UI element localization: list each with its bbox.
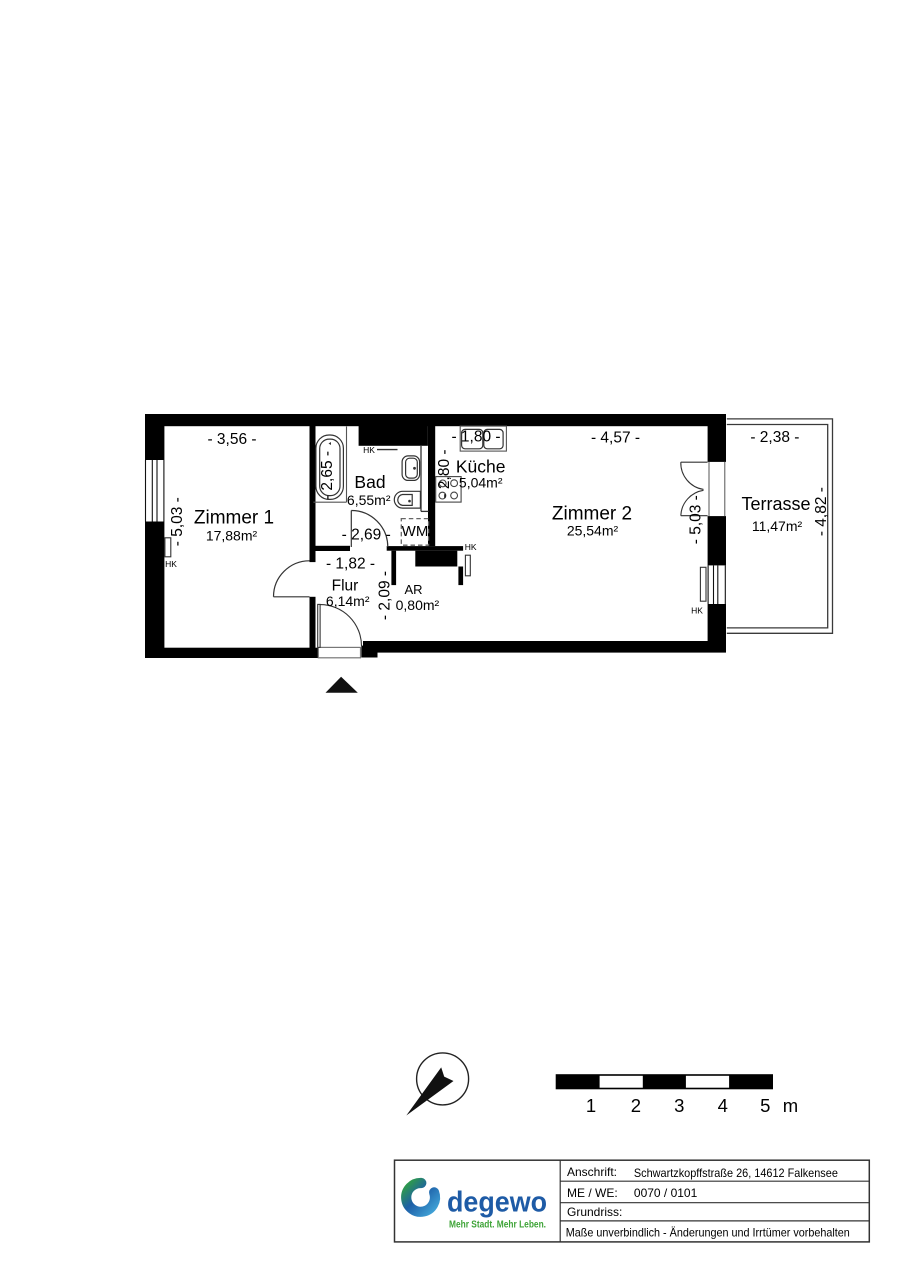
svg-text:- 3,56 -: - 3,56 - [207, 431, 256, 448]
svg-text:- 4,82 -: - 4,82 - [813, 487, 830, 536]
svg-text:- 5,03 -: - 5,03 - [688, 495, 705, 544]
svg-text:- 1,80 -: - 1,80 - [451, 429, 500, 446]
svg-text:Mehr Stadt. Mehr Leben.: Mehr Stadt. Mehr Leben. [449, 1218, 546, 1230]
svg-text:Maße unverbindlich - Änderunge: Maße unverbindlich - Änderungen und Irrt… [566, 1226, 850, 1240]
svg-text:- 2,09 -: - 2,09 - [376, 571, 393, 620]
svg-text:- 2,80 -: - 2,80 - [436, 449, 453, 498]
svg-text:- 5,03 -: - 5,03 - [169, 497, 186, 546]
svg-text:Küche: Küche [456, 456, 506, 476]
svg-text:Zimmer 2: Zimmer 2 [552, 504, 632, 525]
svg-text:5,04m²: 5,04m² [459, 475, 503, 491]
svg-text:3: 3 [674, 1095, 684, 1116]
svg-text:6,14m²: 6,14m² [326, 593, 370, 609]
svg-text:Zimmer 1: Zimmer 1 [194, 508, 274, 529]
svg-text:- 2,38 -: - 2,38 - [750, 429, 799, 446]
svg-text:6,55m²: 6,55m² [347, 492, 391, 508]
svg-text:HK: HK [165, 559, 177, 569]
svg-text:- 4,57 -: - 4,57 - [591, 430, 640, 447]
svg-text:m: m [783, 1095, 798, 1116]
svg-text:Terrasse: Terrasse [741, 494, 810, 514]
svg-text:0,80m²: 0,80m² [396, 597, 440, 613]
svg-text:Grundriss:: Grundriss: [567, 1205, 622, 1219]
svg-text:WM: WM [402, 523, 429, 540]
svg-text:- 1,82 -: - 1,82 - [326, 556, 375, 573]
svg-text:AR: AR [404, 582, 422, 597]
svg-text:0070 / 0101: 0070 / 0101 [634, 1186, 698, 1200]
svg-text:11,47m²: 11,47m² [752, 518, 803, 534]
svg-text:5: 5 [760, 1095, 770, 1116]
svg-text:ME / WE:: ME / WE: [567, 1186, 618, 1200]
svg-text:Bad: Bad [354, 472, 385, 492]
svg-text:1: 1 [586, 1095, 596, 1116]
svg-text:HK: HK [465, 542, 477, 552]
svg-text:25,54m²: 25,54m² [567, 523, 619, 539]
svg-text:4: 4 [718, 1095, 728, 1116]
svg-text:degewo: degewo [447, 1187, 547, 1219]
svg-text:Anschrift:: Anschrift: [567, 1165, 617, 1179]
svg-text:- 2,65 -: - 2,65 - [319, 451, 336, 500]
svg-text:17,88m²: 17,88m² [206, 528, 258, 544]
svg-text:Schwartzkopffstraße 26, 14612: Schwartzkopffstraße 26, 14612 Falkensee [634, 1166, 838, 1180]
svg-text:HK: HK [363, 445, 375, 455]
svg-text:HK: HK [691, 606, 703, 616]
svg-text:2: 2 [631, 1095, 641, 1116]
svg-text:- 2,69 -: - 2,69 - [342, 527, 391, 544]
